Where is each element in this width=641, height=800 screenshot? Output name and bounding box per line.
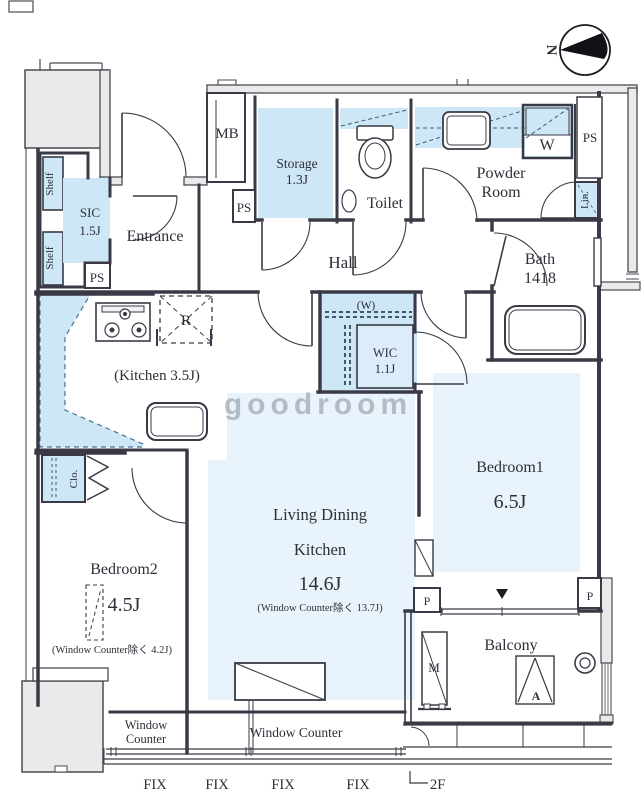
vanity-sink-icon [443, 112, 490, 149]
fix-glazing [106, 749, 406, 754]
mb-label: MB [215, 126, 238, 142]
bath-window [594, 238, 601, 286]
balcony-label: Balcony [484, 637, 537, 654]
drain-icon [575, 653, 595, 673]
closet-label: Clo. [68, 469, 80, 488]
hall-label: Hall [328, 253, 358, 272]
shelf-label-top: Shelf [44, 172, 56, 196]
bath-size: 1418 [524, 270, 556, 287]
fix-label-4: FIX [346, 777, 370, 793]
fix-label-1: FIX [143, 777, 167, 793]
top-exterior-wall [207, 85, 637, 93]
storage-name: Storage [276, 156, 317, 171]
linen-label: Lin. [579, 191, 591, 209]
toilet-label: Toilet [367, 195, 404, 212]
sic-floor [63, 178, 110, 263]
bedroom1-door-arc [421, 292, 466, 338]
fix-label-2: FIX [205, 777, 229, 793]
meter-label: M [428, 660, 440, 675]
floor-plan: goodroom [0, 0, 641, 800]
sic-name: SIC [80, 205, 100, 220]
bottom-left-block [22, 681, 103, 772]
linen-door-arc [541, 182, 577, 218]
top-left-duct [9, 1, 33, 12]
entrance-door-arc [122, 113, 186, 177]
ldk-door-arc [258, 292, 312, 346]
balcony-hatch-arc [411, 727, 429, 746]
balcony-east-window [602, 663, 611, 715]
north-label: N [543, 45, 559, 56]
powder-label-1: Powder [477, 165, 527, 182]
top-left-block [25, 70, 108, 148]
pipe-line [247, 692, 255, 753]
powder-door-arc [423, 168, 477, 222]
compass: N [543, 25, 610, 75]
ldk-label-1: Living Dining [273, 505, 367, 524]
ps-box-bottom-left [33, 668, 108, 681]
bedroom1-size: 6.5J [494, 491, 527, 513]
wic-name: WIC [373, 346, 397, 360]
storage-size: 1.3J [286, 172, 308, 187]
closet-bifold-door [87, 456, 108, 500]
floor-mark-bracket [410, 771, 428, 783]
bedroom2-name: Bedroom2 [90, 561, 158, 578]
floor-label: 2F [430, 777, 445, 793]
fix-label-3: FIX [271, 777, 295, 793]
ps-label-right: PS [583, 130, 597, 145]
bedroom2-size: 4.5J [108, 594, 141, 616]
ps-label-sic: PS [90, 270, 104, 285]
right-exterior-wall [628, 88, 637, 272]
ps-label-storage: PS [237, 200, 251, 215]
bedroom1-name: Bedroom1 [476, 459, 544, 476]
shelf-label-bottom: Shelf [44, 246, 56, 270]
counter-board-icon [235, 663, 325, 700]
balcony-east-wall [601, 578, 612, 663]
kitchen-label: (Kitchen 3.5J) [114, 368, 200, 384]
powder-label-2: Room [481, 184, 521, 201]
bedroom2-door-arc [132, 468, 187, 523]
toilet-sink-icon [342, 190, 356, 212]
storage-door-arc [262, 222, 310, 270]
balcony-railing [403, 725, 612, 747]
pillar-label-right: P [587, 589, 594, 603]
ldk-label-2: Kitchen [294, 540, 346, 559]
entrance-label: Entrance [127, 228, 184, 245]
kitchen-sink-icon [147, 403, 207, 440]
window-counter-left-1: Window [125, 718, 168, 732]
sic-size: 1.5J [79, 223, 100, 238]
pillar-label-left: P [424, 594, 431, 608]
ldk-note: (Window Counter除く 13.7J) [257, 601, 383, 614]
bath-name: Bath [525, 251, 555, 268]
entry-side-wall [100, 70, 110, 185]
toilet-door-arc [353, 222, 406, 275]
aircon-label: A [532, 689, 541, 703]
wic-size: 1.1J [375, 362, 396, 376]
entry-triangle-marker [496, 589, 508, 599]
window-counter-center: Window Counter [250, 725, 343, 740]
stove-icon [96, 303, 150, 341]
wic-pipe-note: (W) [357, 300, 376, 312]
sill-lines [104, 759, 612, 764]
refrigerator-label: R [181, 313, 191, 329]
ldk-size: 14.6J [299, 573, 342, 595]
washer-label: W [539, 137, 555, 154]
bedroom2-note: (Window Counter除く 4.2J) [52, 643, 173, 656]
window-counter-left-2: Counter [126, 732, 167, 746]
balcony-window [441, 609, 579, 614]
